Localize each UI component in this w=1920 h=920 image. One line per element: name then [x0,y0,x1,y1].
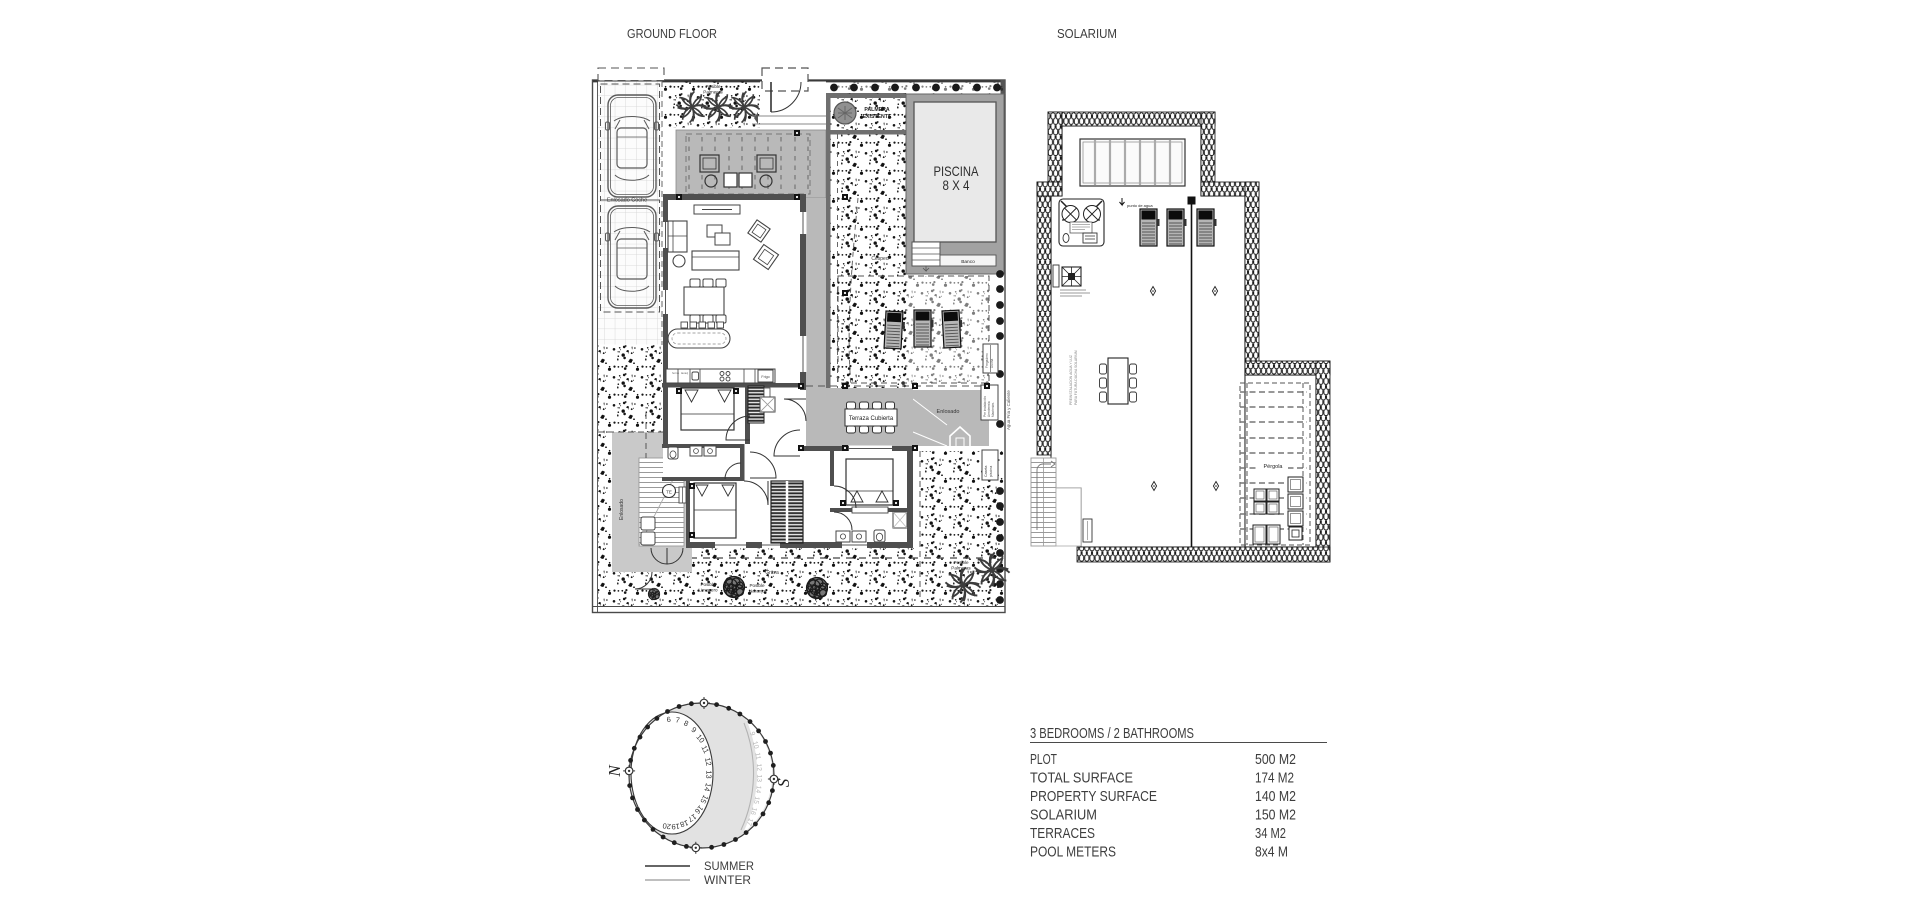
svg-text:Posible: Posible [705,84,721,89]
svg-text:S: S [774,778,793,787]
svg-text:Enlosado: Enlosado [937,409,960,415]
svg-text:Posible: Posible [953,560,969,565]
svg-text:GROUND FLOOR: GROUND FLOOR [627,27,717,41]
svg-text:TE: TE [666,490,672,495]
svg-text:12: 12 [703,757,714,767]
svg-text:7: 7 [675,715,681,725]
svg-text:PROPERTY SURFACE: PROPERTY SURFACE [1030,788,1157,805]
svg-text:Limonero: Limonero [698,588,718,593]
svg-text:Banco: Banco [961,259,975,265]
svg-text:PARA FUTURA DUCHA SOLARIUM: PARA FUTURA DUCHA SOLARIUM [1074,350,1078,405]
svg-text:horno: horno [672,371,680,375]
svg-text:Agua Fria y Caliente: Agua Fria y Caliente [1006,390,1011,430]
svg-text:TERRACES: TERRACES [1030,825,1095,842]
svg-text:Frigo: Frigo [761,375,769,379]
svg-text:3 BEDROOMS / 2 BATHROOMS: 3 BEDROOMS / 2 BATHROOMS [1030,725,1194,742]
svg-text:8 X 4: 8 X 4 [943,177,970,193]
svg-text:140 M2: 140 M2 [1255,788,1296,805]
svg-text:PALMERA: PALMERA [864,107,890,113]
svg-text:Naranjo: Naranjo [749,589,766,594]
svg-text:174 M2: 174 M2 [1255,770,1294,787]
svg-text:SOLARIUM: SOLARIUM [1030,807,1097,824]
svg-text:9: 9 [690,725,699,735]
svg-text:11: 11 [753,752,761,760]
svg-text:Posible: Posible [749,583,765,588]
svg-text:+: + [766,568,769,574]
svg-text:13: 13 [755,774,762,782]
svg-text:8x4 M: 8x4 M [1255,844,1288,861]
svg-text:piscina: piscina [989,466,993,477]
svg-text:Mantenim.: Mantenim. [991,402,995,417]
svg-text:19: 19 [671,822,680,832]
svg-text:Ducha: Ducha [990,359,994,368]
svg-text:13: 13 [704,770,713,779]
svg-text:Palmeras: Palmeras [951,566,971,571]
svg-text:TOTAL SURFACE: TOTAL SURFACE [1030,770,1133,787]
svg-text:POOL METERS: POOL METERS [1030,844,1116,861]
svg-text:PLOT: PLOT [1030,751,1057,768]
svg-text:Caseta: Caseta [984,466,988,477]
svg-text:12: 12 [755,763,763,771]
svg-text:Palmeras: Palmeras [703,90,723,95]
svg-text:PREINSTALACION AGUA Y LUZ: PREINSTALACION AGUA Y LUZ [1069,355,1073,405]
svg-text:Fregadero: Fregadero [985,353,989,368]
svg-text:14: 14 [702,782,713,792]
svg-text:Enlosado: Enlosado [619,499,625,520]
svg-text:14: 14 [754,785,762,794]
svg-text:WINTER: WINTER [704,875,751,887]
svg-text:6: 6 [666,715,671,724]
svg-text:150 M2: 150 M2 [1255,807,1296,824]
svg-text:Pérgola: Pérgola [1264,464,1284,470]
svg-text:Terraza Cubierta: Terraza Cubierta [849,416,894,422]
svg-text:20: 20 [662,821,672,831]
svg-text:lavavj: lavavj [681,371,689,375]
svg-text:11: 11 [699,744,711,755]
svg-text:punto de agua: punto de agua [1127,203,1153,208]
svg-text:SUMMER: SUMMER [704,861,754,873]
svg-text:N: N [605,764,624,778]
svg-text:500 M2: 500 M2 [1255,751,1296,768]
svg-text:Enlosado Coche: Enlosado Coche [607,198,647,204]
svg-text:8: 8 [682,718,689,728]
svg-text:34 M2: 34 M2 [1255,825,1286,842]
svg-text:SOLARIUM: SOLARIUM [1057,27,1117,41]
svg-text:Posible: Posible [700,582,716,587]
svg-text:EXISTENTE: EXISTENTE [863,114,892,120]
svg-text:Cesped: Cesped [871,256,888,262]
